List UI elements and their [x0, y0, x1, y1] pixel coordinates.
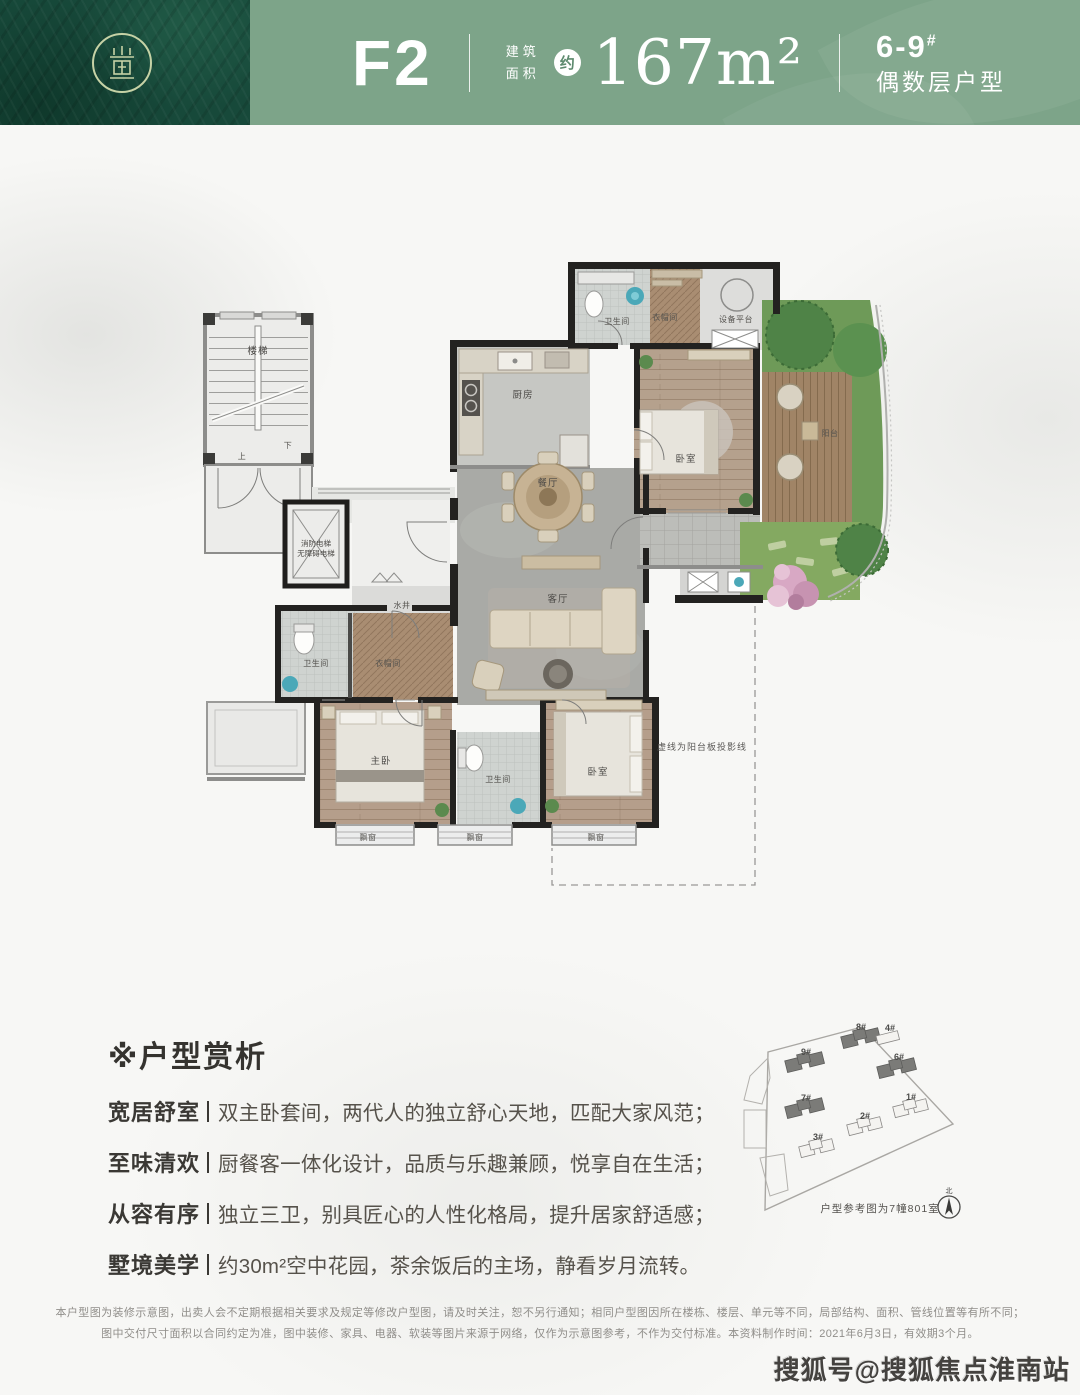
- brand-seal-icon: [92, 33, 152, 93]
- label-up: 上: [238, 452, 247, 461]
- analysis-title: ※户型赏析: [108, 1032, 688, 1076]
- label-bedroom-top: 卧室: [675, 453, 696, 465]
- building-label-9: 9#: [801, 1047, 811, 1057]
- label-bay-1: 飘窗: [360, 832, 377, 842]
- floor-plan: 虚线为阳台板投影线 楼梯 上 下 消防电梯 无障碍电梯 水井 厨房 餐厅 客厅 …: [90, 250, 970, 910]
- analysis-item-text: 双主卧套间，两代人的独立舒心天地，匹配大家风范；: [218, 1096, 715, 1126]
- analysis-section: ※户型赏析 宽居舒室 双主卧套间，两代人的独立舒心天地，匹配大家风范； 至味清欢…: [108, 1032, 688, 1280]
- label-bathroom-left: 卫生间: [303, 658, 329, 668]
- compass-north-label: 北: [946, 1187, 953, 1195]
- analysis-item: 从容有序 独立三卫，别具匠心的人性化格局，提升居家舒适感；: [108, 1197, 688, 1229]
- building-label-6: 6#: [894, 1052, 904, 1062]
- building-label-3: 3#: [813, 1132, 823, 1142]
- analysis-item: 至味清欢 厨餐客一体化设计，品质与乐趣兼顾，悦享自在生活；: [108, 1146, 688, 1178]
- building-label-1: 1#: [906, 1092, 916, 1102]
- poster-page: F2 建筑 面积 约 167m² 6-9# 偶数层户型: [0, 0, 1080, 1395]
- header-title-area: F2 建筑 面积 约 167m² 6-9# 偶数层户型: [250, 0, 1080, 125]
- label-closet-top: 衣帽间: [652, 312, 678, 322]
- label-dining: 餐厅: [537, 477, 558, 489]
- label-shaft: 水井: [394, 600, 411, 610]
- label-bay-2: 飘窗: [467, 832, 484, 842]
- disclaimer-line-2: 图中交付尺寸面积以合同约定为准，图中装修、家具、电器、软装等图片来源于网络，仅作…: [0, 1324, 1080, 1345]
- analysis-item-text: 厨餐客一体化设计，品质与乐趣兼顾，悦享自在生活；: [218, 1147, 715, 1177]
- analysis-item-label: 至味清欢: [108, 1146, 200, 1178]
- label-divider: [207, 1101, 209, 1122]
- area-group: 建筑 面积 约 167m²: [506, 31, 803, 94]
- brand-panel: [0, 0, 250, 125]
- label-elevator-1: 消防电梯: [301, 538, 331, 548]
- label-bay-3: 飘窗: [588, 832, 605, 842]
- label-master: 主卧: [370, 755, 391, 767]
- analysis-item-label: 宽居舒室: [108, 1095, 200, 1127]
- sky-garden: [740, 300, 892, 610]
- analysis-item: 宽居舒室 双主卧套间，两代人的独立舒心天地，匹配大家风范；: [108, 1095, 688, 1127]
- label-stairs: 楼梯: [247, 345, 268, 357]
- site-plan: 8# 4# 9# 6# 7# 1# 2# 3# 户型参考图为7幢801室 北: [740, 1018, 1060, 1233]
- analysis-item-text: 约30m²空中花园，茶余饭后的主场，静看岁月流转。: [218, 1249, 700, 1279]
- unit-code: F2: [352, 31, 433, 95]
- area-label: 建筑 面积: [506, 41, 540, 84]
- label-bathroom-mid: 卫生间: [485, 774, 511, 784]
- area-label-line2: 面积: [506, 63, 540, 84]
- compass-icon: 北: [938, 1187, 960, 1218]
- building-label-4: 4#: [885, 1023, 895, 1033]
- disclaimer-line-1: 本户型图为装修示意图，出卖人会不定期根据相关要求及规定等修改户型图，请及时关注，…: [0, 1303, 1080, 1324]
- approx-badge: 约: [554, 49, 581, 76]
- label-balcony: 阳台: [822, 428, 839, 438]
- analysis-item-text: 独立三卫，别具匠心的人性化格局，提升居家舒适感；: [218, 1198, 715, 1228]
- building-label-7: 7#: [801, 1093, 811, 1103]
- label-elevator-2: 无障碍电梯: [297, 548, 335, 558]
- watermark: 搜狐号@搜狐焦点淮南站: [774, 1350, 1070, 1387]
- analysis-item-label: 从容有序: [108, 1197, 200, 1229]
- header-divider: [469, 34, 470, 92]
- area-label-line1: 建筑: [506, 41, 540, 62]
- floor-plan-svg: 虚线为阳台板投影线 楼梯 上 下 消防电梯 无障碍电梯 水井 厨房 餐厅 客厅 …: [90, 250, 970, 910]
- label-bedroom-br: 卧室: [587, 766, 608, 778]
- analysis-item: 墅境美学 约30m²空中花园，茶余饭后的主场，静看岁月流转。: [108, 1248, 688, 1280]
- building-label-8: 8#: [856, 1022, 866, 1032]
- analysis-item-label: 墅境美学: [108, 1248, 200, 1280]
- label-living: 客厅: [547, 593, 568, 605]
- disclaimer: 本户型图为装修示意图，出卖人会不定期根据相关要求及规定等修改户型图，请及时关注，…: [0, 1303, 1080, 1345]
- label-bathroom-top: 卫生间: [604, 316, 630, 326]
- area-value: 167m²: [593, 31, 803, 94]
- site-plan-svg: 8# 4# 9# 6# 7# 1# 2# 3# 户型参考图为7幢801室 北: [740, 1018, 1060, 1233]
- seal-glyph-icon: [106, 46, 138, 80]
- label-closet-left: 衣帽间: [375, 658, 401, 668]
- projection-annotation: 虚线为阳台板投影线: [657, 741, 747, 752]
- label-divider: [207, 1254, 209, 1275]
- label-equipment: 设备平台: [719, 314, 753, 324]
- building-label-2: 2#: [860, 1111, 870, 1121]
- label-down: 下: [284, 441, 293, 450]
- label-divider: [207, 1203, 209, 1224]
- site-plan-caption: 户型参考图为7幢801室: [820, 1202, 939, 1215]
- label-divider: [207, 1152, 209, 1173]
- header-band: F2 建筑 面积 约 167m² 6-9# 偶数层户型: [0, 0, 1080, 125]
- label-kitchen: 厨房: [512, 389, 533, 401]
